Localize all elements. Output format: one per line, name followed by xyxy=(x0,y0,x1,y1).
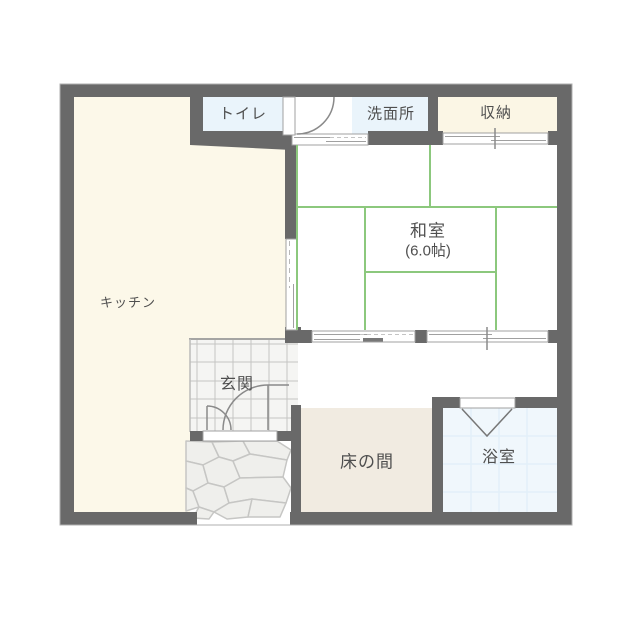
washroom-label: 洗面所 xyxy=(367,106,415,125)
stone-path xyxy=(186,441,291,519)
wall-washitsu-bottom-c xyxy=(548,330,557,343)
floor-plan: トイレ 洗面所 収納 キッチン 和室 (6.0帖) 玄関 床の間 浴室 xyxy=(0,0,640,640)
wall-band-middle xyxy=(368,131,443,145)
wall-band-right-stub xyxy=(548,131,557,145)
wall-top xyxy=(60,84,572,97)
wall-right xyxy=(557,84,572,525)
japanese-room-label: 和室 xyxy=(410,220,446,241)
wall-washitsu-bottom-b xyxy=(415,330,427,343)
kitchen-label: キッチン xyxy=(100,295,156,311)
wall-bottom-left xyxy=(60,512,197,525)
wall-tokonoma-left xyxy=(291,405,301,512)
sliding-door-washitsu-south-right xyxy=(427,327,548,350)
sliding-door-washroom-washitsu xyxy=(292,134,368,145)
wall-left xyxy=(60,84,74,525)
wall-washitsu-bottom-a xyxy=(297,330,312,343)
tokonoma-label: 床の間 xyxy=(340,451,394,472)
sliding-door-washitsu-south-left xyxy=(312,331,415,342)
toilet-label: トイレ xyxy=(219,106,267,125)
floor-plan-drawing xyxy=(0,0,640,640)
wall-bottom-right xyxy=(290,512,572,525)
japanese-room-size-label: (6.0帖) xyxy=(405,243,451,262)
storage-label: 収納 xyxy=(480,105,512,124)
wall-bath-top-left xyxy=(443,397,460,408)
wall-kitchen-washitsu xyxy=(285,144,297,239)
sliding-door-kitchen-washitsu xyxy=(286,239,297,330)
wall-entrance-door-left xyxy=(190,431,203,441)
kitchen-area-extension xyxy=(190,143,287,340)
entrance-label: 玄関 xyxy=(220,375,254,395)
wall-entrance-door-right xyxy=(277,431,291,441)
washroom-door xyxy=(283,97,334,135)
wall-tokonoma-bath xyxy=(432,397,443,512)
wall-bath-top-right xyxy=(515,397,557,408)
bathroom-label: 浴室 xyxy=(482,448,516,468)
